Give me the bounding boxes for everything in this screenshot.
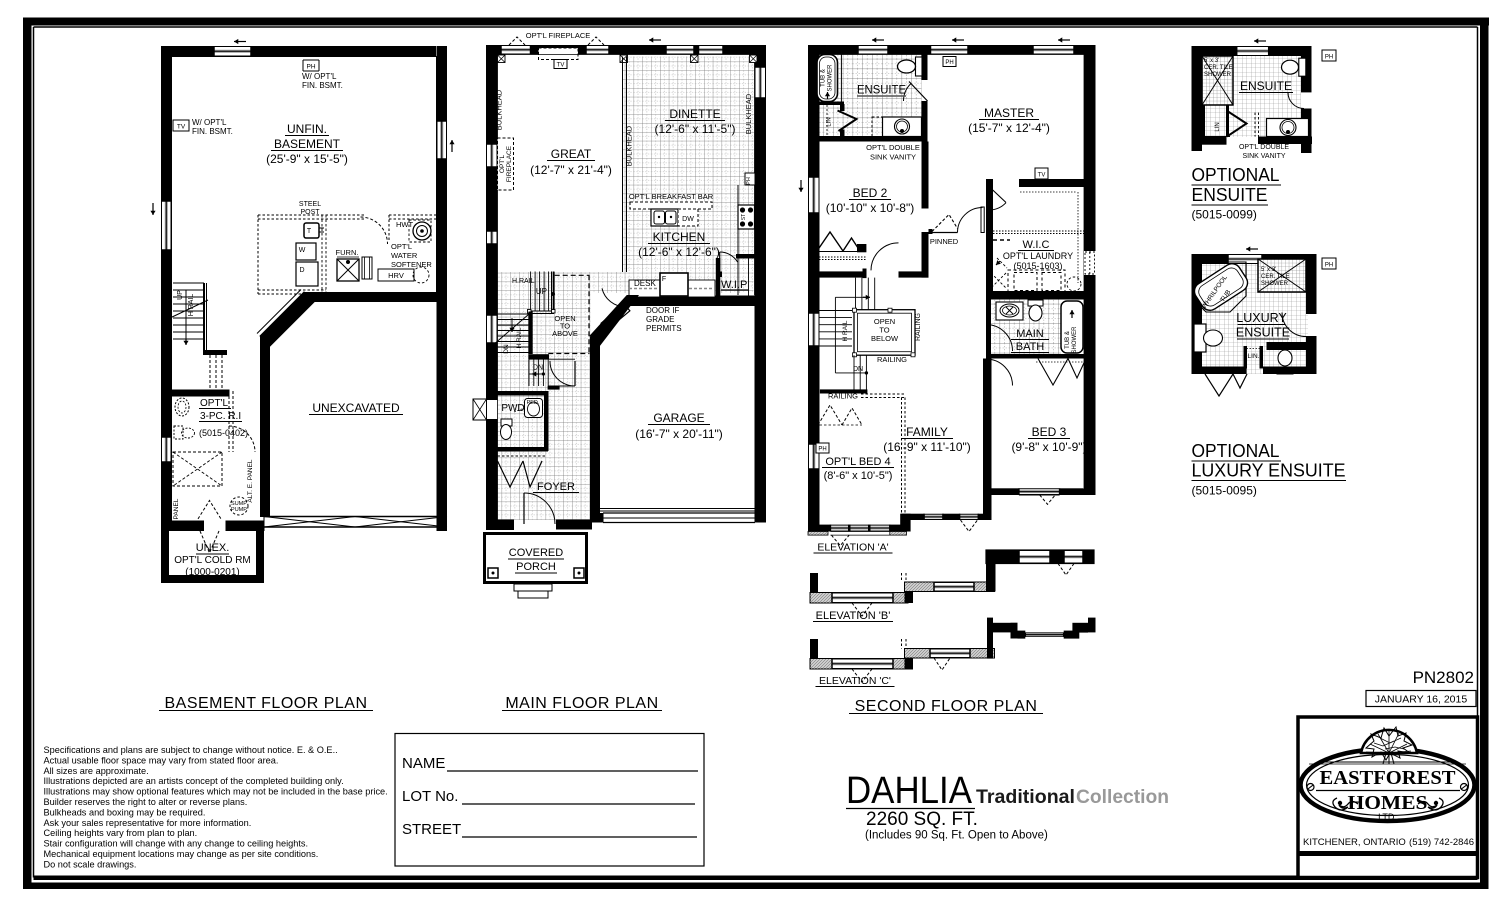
svg-text:MAIN FLOOR PLAN: MAIN FLOOR PLAN <box>505 695 658 712</box>
svg-text:DINETTE: DINETTE <box>669 107 720 121</box>
svg-text:PH: PH <box>746 177 752 185</box>
svg-text:PN2802: PN2802 <box>1413 668 1474 687</box>
svg-text:FURN.: FURN. <box>336 248 359 257</box>
svg-text:COVERED: COVERED <box>509 547 563 559</box>
svg-text:FAMILY: FAMILY <box>906 425 948 439</box>
svg-text:OPT'L DOUBLE: OPT'L DOUBLE <box>1239 144 1289 151</box>
svg-text:PH: PH <box>1325 55 1333 61</box>
svg-text:TUB &: TUB & <box>1065 331 1071 349</box>
svg-text:(25'-9" x 15'-5"): (25'-9" x 15'-5") <box>266 152 348 166</box>
svg-text:Do not scale drawings.: Do not scale drawings. <box>44 859 137 869</box>
svg-text:PORCH: PORCH <box>516 561 556 573</box>
svg-text:(8'-6" x 10'-5"): (8'-6" x 10'-5") <box>824 470 893 482</box>
svg-text:NAME: NAME <box>402 755 445 772</box>
svg-text:SHOWER: SHOWER <box>1204 72 1232 78</box>
svg-text:FIN. BSMT.: FIN. BSMT. <box>192 127 233 136</box>
svg-text:Specifications and plans are s: Specifications and plans are subject to … <box>44 745 338 755</box>
svg-text:LUXURY ENSUITE: LUXURY ENSUITE <box>1192 460 1346 481</box>
svg-text:OPT'L: OPT'L <box>200 398 228 409</box>
svg-text:PINNED: PINNED <box>930 237 959 246</box>
svg-text:Illustrations may show optiona: Illustrations may show optional features… <box>44 787 388 797</box>
svg-text:LTD.: LTD. <box>1378 812 1397 822</box>
svg-text:OPTIONAL: OPTIONAL <box>1192 164 1280 185</box>
svg-text:PWD: PWD <box>501 403 524 414</box>
svg-text:3-PC. R.I: 3-PC. R.I <box>200 411 241 422</box>
svg-text:POST: POST <box>300 209 320 216</box>
svg-text:SINK VANITY: SINK VANITY <box>1242 153 1285 160</box>
svg-text:(16'-9" x 11'-10"): (16'-9" x 11'-10") <box>883 440 971 454</box>
svg-text:UP: UP <box>177 290 184 300</box>
svg-text:SHOWER: SHOWER <box>828 64 834 92</box>
svg-text:UNEX.: UNEX. <box>196 542 230 554</box>
svg-text:Mechanical equipment locations: Mechanical equipment locations may chang… <box>44 849 319 859</box>
svg-text:BED 2: BED 2 <box>853 186 888 200</box>
svg-text:HRV: HRV <box>388 271 404 280</box>
svg-text:MASTER: MASTER <box>984 106 1034 120</box>
svg-text:DN: DN <box>503 344 510 354</box>
svg-text:BATH: BATH <box>1016 341 1045 353</box>
svg-text:UP: UP <box>536 287 547 296</box>
svg-text:GREAT: GREAT <box>551 147 592 161</box>
svg-text:T: T <box>307 228 312 235</box>
svg-text:PH: PH <box>1325 263 1333 269</box>
svg-text:LUXURY: LUXURY <box>1236 311 1287 325</box>
svg-text:PED.: PED. <box>527 400 540 406</box>
svg-text:SINK VANITY: SINK VANITY <box>870 153 916 162</box>
svg-text:HWT: HWT <box>396 220 413 229</box>
svg-text:Ceiling heights vary from plan: Ceiling heights vary from plan to plan. <box>44 828 198 838</box>
svg-text:H RAIL: H RAIL <box>842 320 849 341</box>
svg-text:UNEXCAVATED: UNEXCAVATED <box>312 401 400 415</box>
svg-text:W: W <box>299 247 306 254</box>
svg-text:W/ OPT'L: W/ OPT'L <box>192 118 227 127</box>
svg-text:H RAIL: H RAIL <box>188 294 195 317</box>
svg-text:TV: TV <box>557 63 565 69</box>
svg-text:LIN: LIN <box>1215 122 1221 131</box>
svg-text:(Includes 90 Sq. Ft. Open to A: (Includes 90 Sq. Ft. Open to Above) <box>865 830 1048 842</box>
svg-text:DOOR IF: DOOR IF <box>646 306 679 315</box>
svg-text:Illustrations depicted are an: Illustrations depicted are an artists co… <box>44 776 344 786</box>
svg-text:ST: ST <box>741 214 747 220</box>
svg-text:ELEVATION 'B': ELEVATION 'B' <box>816 610 891 622</box>
svg-text:KITCHENER, ONTARIO: KITCHENER, ONTARIO <box>1303 837 1406 848</box>
svg-text:BASEMENT FLOOR PLAN: BASEMENT FLOOR PLAN <box>164 695 367 712</box>
svg-text:PH: PH <box>945 60 953 66</box>
svg-text:LIN: LIN <box>827 117 833 126</box>
svg-text:LIN.: LIN. <box>1248 353 1260 360</box>
svg-text:EASTFOREST: EASTFOREST <box>1320 767 1457 789</box>
svg-text:DN: DN <box>533 365 543 372</box>
svg-text:(12'-7" x 21'-4"): (12'-7" x 21'-4") <box>530 163 612 177</box>
svg-text:SOFTENER: SOFTENER <box>391 260 432 269</box>
svg-text:(12'-6" x 12'-6"): (12'-6" x 12'-6") <box>638 245 720 259</box>
svg-text:5' x 3': 5' x 3' <box>1261 267 1276 273</box>
svg-text:FIREPLACE: FIREPLACE <box>506 145 513 182</box>
svg-text:DW: DW <box>682 216 694 223</box>
svg-text:DN: DN <box>853 366 863 373</box>
svg-text:Traditional: Traditional <box>976 786 1075 808</box>
svg-text:ENSUITE: ENSUITE <box>1236 326 1290 340</box>
svg-text:Builder reserves the right to: Builder reserves the right to alter or r… <box>44 797 248 807</box>
svg-text:OPT'L BREAKFAST BAR: OPT'L BREAKFAST BAR <box>629 192 714 201</box>
svg-text:GARAGE: GARAGE <box>653 411 704 425</box>
svg-text:OPT'L LAUNDRY: OPT'L LAUNDRY <box>1003 251 1073 261</box>
svg-text:ELEVATION 'A': ELEVATION 'A' <box>817 542 888 554</box>
svg-text:W.I.C: W.I.C <box>1023 239 1050 251</box>
svg-text:WATER: WATER <box>391 251 418 260</box>
svg-text:BULKHEAD: BULKHEAD <box>625 125 634 166</box>
svg-text:(16'-7" x 20'-11"): (16'-7" x 20'-11") <box>635 427 723 441</box>
svg-text:(15'-7" x 12'-4"): (15'-7" x 12'-4") <box>968 121 1050 135</box>
svg-text:ELEVATION 'C': ELEVATION 'C' <box>819 675 891 687</box>
svg-text:(1000-0201): (1000-0201) <box>185 567 239 578</box>
svg-text:JANUARY 16, 2015: JANUARY 16, 2015 <box>1375 694 1468 706</box>
svg-text:PH: PH <box>818 447 826 453</box>
svg-text:CER. TILE: CER. TILE <box>1261 274 1290 280</box>
svg-text:(12'-6" x 11'-5"): (12'-6" x 11'-5") <box>655 122 736 136</box>
svg-text:Ask your sales representative: Ask your sales representative for more i… <box>44 818 252 828</box>
svg-text:F: F <box>662 276 666 283</box>
svg-text:BED 3: BED 3 <box>1032 425 1067 439</box>
svg-text:FIN. BSMT.: FIN. BSMT. <box>302 81 343 90</box>
svg-text:PUMP: PUMP <box>231 507 247 513</box>
svg-text:OPT'L: OPT'L <box>499 155 506 174</box>
svg-text:DAHLIA: DAHLIA <box>846 770 973 812</box>
svg-text:ENSUITE: ENSUITE <box>1240 79 1292 93</box>
svg-text:OPT'L DOUBLE: OPT'L DOUBLE <box>866 143 920 152</box>
svg-text:D: D <box>299 267 304 274</box>
svg-text:CER. TILE: CER. TILE <box>1204 65 1233 71</box>
svg-text:All sizes are approximate.: All sizes are approximate. <box>44 766 149 776</box>
svg-text:SECOND FLOOR PLAN: SECOND FLOOR PLAN <box>855 698 1038 715</box>
svg-text:TV: TV <box>1038 173 1046 179</box>
svg-text:BULKHEAD: BULKHEAD <box>495 89 504 130</box>
svg-text:TV: TV <box>177 124 186 131</box>
svg-text:BASEMENT: BASEMENT <box>274 137 341 151</box>
svg-text:Collection: Collection <box>1076 786 1169 808</box>
svg-text:2260 SQ. FT.: 2260 SQ. FT. <box>866 809 978 830</box>
svg-text:BULKHEAD: BULKHEAD <box>744 93 753 134</box>
svg-text:RAILING: RAILING <box>877 355 907 364</box>
svg-text:UNFIN.: UNFIN. <box>287 122 327 136</box>
svg-text:FOYER: FOYER <box>537 481 575 493</box>
svg-text:H RAIL: H RAIL <box>516 327 523 348</box>
svg-text:GRADE: GRADE <box>646 315 674 324</box>
svg-text:MAIN: MAIN <box>1016 328 1044 340</box>
svg-text:DESK: DESK <box>634 279 656 288</box>
svg-text:SHOWER: SHOWER <box>1072 326 1078 354</box>
svg-text:(5015-0402): (5015-0402) <box>199 428 248 438</box>
svg-text:TUB &: TUB & <box>821 69 827 87</box>
svg-text:E. PANEL: E. PANEL <box>173 498 180 527</box>
svg-text:LOT No.: LOT No. <box>402 788 458 805</box>
svg-text:OPT'L: OPT'L <box>391 242 412 251</box>
svg-text:W.I.P: W.I.P <box>721 279 747 291</box>
svg-text:(5015-0099): (5015-0099) <box>1192 208 1257 222</box>
svg-text:Stair configuration will chang: Stair configuration will change with any… <box>44 839 309 849</box>
svg-text:Actual usable floor space may: Actual usable floor space may vary from … <box>44 755 279 765</box>
svg-text:PERMITS: PERMITS <box>646 324 682 333</box>
svg-text:ENSUITE: ENSUITE <box>857 83 906 97</box>
svg-text:HOMES: HOMES <box>1348 792 1428 814</box>
svg-text:(9'-8" x 10'-9"): (9'-8" x 10'-9") <box>1011 440 1086 454</box>
svg-text:ENSUITE: ENSUITE <box>1192 184 1268 205</box>
svg-text:SHOWER: SHOWER <box>1261 281 1289 287</box>
svg-text:BELOW: BELOW <box>871 334 899 343</box>
svg-text:OPTIONAL: OPTIONAL <box>1192 440 1280 461</box>
svg-text:5' x 3': 5' x 3' <box>1204 58 1219 64</box>
svg-text:OPT'L COLD RM: OPT'L COLD RM <box>174 555 251 566</box>
svg-text:W/ OPT'L: W/ OPT'L <box>302 72 337 81</box>
svg-text:PH: PH <box>306 64 315 71</box>
svg-text:(10'-10" x 10'-8"): (10'-10" x 10'-8") <box>826 201 914 215</box>
svg-text:(519) 742-2846: (519) 742-2846 <box>1409 837 1474 848</box>
svg-text:RAILING: RAILING <box>915 313 922 341</box>
svg-text:KITCHEN: KITCHEN <box>653 230 706 244</box>
svg-text:STEEL: STEEL <box>299 201 321 208</box>
svg-text:ALT. E. PANEL: ALT. E. PANEL <box>247 459 254 502</box>
svg-text:STREET: STREET <box>402 821 461 838</box>
svg-text:H.RAIL: H.RAIL <box>512 278 535 285</box>
svg-text:(5015-0095): (5015-0095) <box>1192 484 1257 498</box>
svg-text:Bulkheads and boxing may be re: Bulkheads and boxing may be required. <box>44 807 206 817</box>
svg-text:OPT'L FIREPLACE: OPT'L FIREPLACE <box>526 31 591 40</box>
svg-text:OPT'L BED 4: OPT'L BED 4 <box>825 456 890 468</box>
svg-text:ABOVE: ABOVE <box>552 329 578 338</box>
